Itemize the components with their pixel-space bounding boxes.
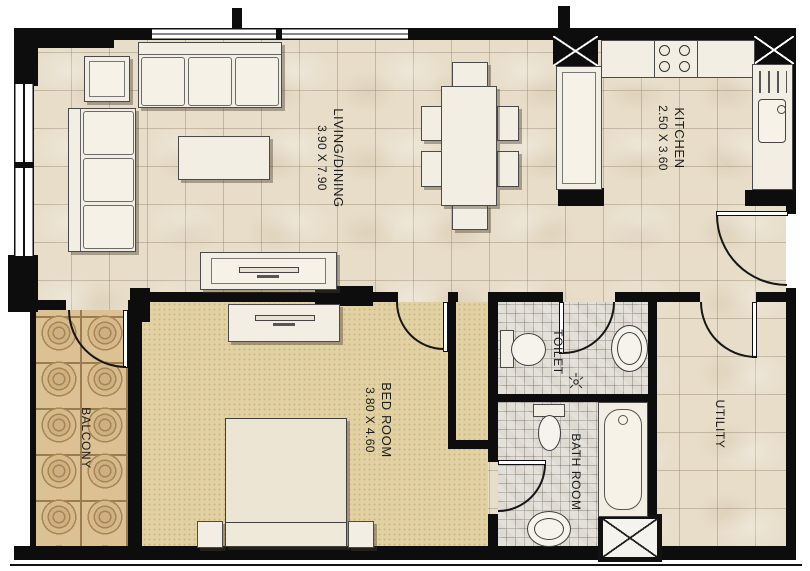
wall-segment [490,292,563,302]
wall-kitchen-stub-right [745,190,793,206]
wall-kitchen-stub-left [558,188,604,206]
drain-icon [618,415,628,425]
wall-balcony-right [128,300,142,548]
wall-bedroom-right [488,292,498,462]
floor-plan: LIVING/DINING 3.90 X 7.90 KITCHEN 2.50 X… [0,0,810,571]
burner-icon [679,61,690,72]
dining-chair [452,205,488,230]
window-mullion [276,28,282,40]
bed-footboard [226,522,346,546]
washbasin-bowl [617,332,642,365]
tv-console-bedroom [228,304,340,342]
room-name: BATH ROOM [567,433,583,510]
dining-table [441,86,497,206]
room-name: BALCONY [77,407,93,469]
room-label-balcony: BALCONY [77,407,93,469]
wall-segment [615,292,700,302]
room-name: UTILITY [711,400,727,449]
nightstand [348,521,374,548]
dining-chair [497,106,519,141]
room-label-living-dining: LIVING/DINING 3.90 X 7.90 [314,108,346,208]
room-name: BED ROOM [377,382,394,458]
room-label-kitchen: KITCHEN 2.50 X 3.60 [655,105,687,171]
burner-icon [659,61,670,72]
tv-stand [257,275,279,278]
wall-toilet-bath [488,394,655,402]
cabinet-top [562,72,596,184]
room-name: KITCHEN [670,105,687,171]
sofa-back [139,43,281,55]
vent-mark [558,6,570,30]
tv-stand [273,323,295,326]
side-table-top [89,61,125,97]
column-icon [754,36,794,64]
window-mullion [14,162,34,168]
room-label-bathroom: BATH ROOM [567,433,583,510]
burner-icon [659,45,670,56]
stove [654,40,698,78]
bathtub-icon [598,402,648,517]
coffee-table [178,136,270,180]
dining-chair [452,62,488,87]
washbasin-bowl [534,518,564,540]
vent-mark [232,8,242,30]
light-icon [566,372,586,392]
room-label-utility: UTILITY [711,400,727,449]
toilet-icon [511,333,546,366]
tv-icon [239,267,299,273]
ground-line [10,564,802,566]
shaft-icon [598,514,662,562]
dining-chair [421,151,443,187]
dining-chair [421,106,443,141]
column-icon [553,36,598,66]
room-dims: 2.50 X 3.60 [655,105,671,171]
faucet-icon [777,105,786,114]
wall-bath-utility [648,292,657,548]
kitchen-counter-right [752,64,793,190]
sofa-cushions [81,109,135,251]
sofa-three-seat [138,42,282,108]
room-name: TOILET [549,329,565,374]
wall-bedroom-right2 [488,514,498,548]
sofa-three-seat-vertical [68,108,136,252]
sofa-back [69,109,81,251]
wall-balcony-top [34,300,66,310]
window-left [14,84,34,256]
wall-bottom [14,546,796,560]
wall-right-lower [786,288,796,560]
sofa-cushions [139,55,281,107]
bed [225,418,347,547]
room-dims: 3.80 X 4.60 [362,382,378,458]
toilet-icon [538,415,561,451]
dining-chair [497,151,519,187]
wall-closet-vert [448,298,456,448]
burner-icon [679,45,690,56]
kitchen-cabinet-left [556,66,602,190]
room-name: LIVING/DINING [329,108,346,208]
room-label-toilet: TOILET [549,329,565,374]
room-label-bedroom: BED ROOM 3.80 X 4.60 [362,382,394,458]
room-dims: 3.90 X 7.90 [314,108,330,208]
nightstand [197,521,223,548]
tv-console-living [200,252,337,290]
side-table [84,56,130,102]
tv-icon [255,315,315,321]
wall-closet-horiz [448,440,498,449]
wall-segment [756,292,796,302]
wall-balcony-left [30,312,36,548]
drainboard-icon [759,71,787,93]
